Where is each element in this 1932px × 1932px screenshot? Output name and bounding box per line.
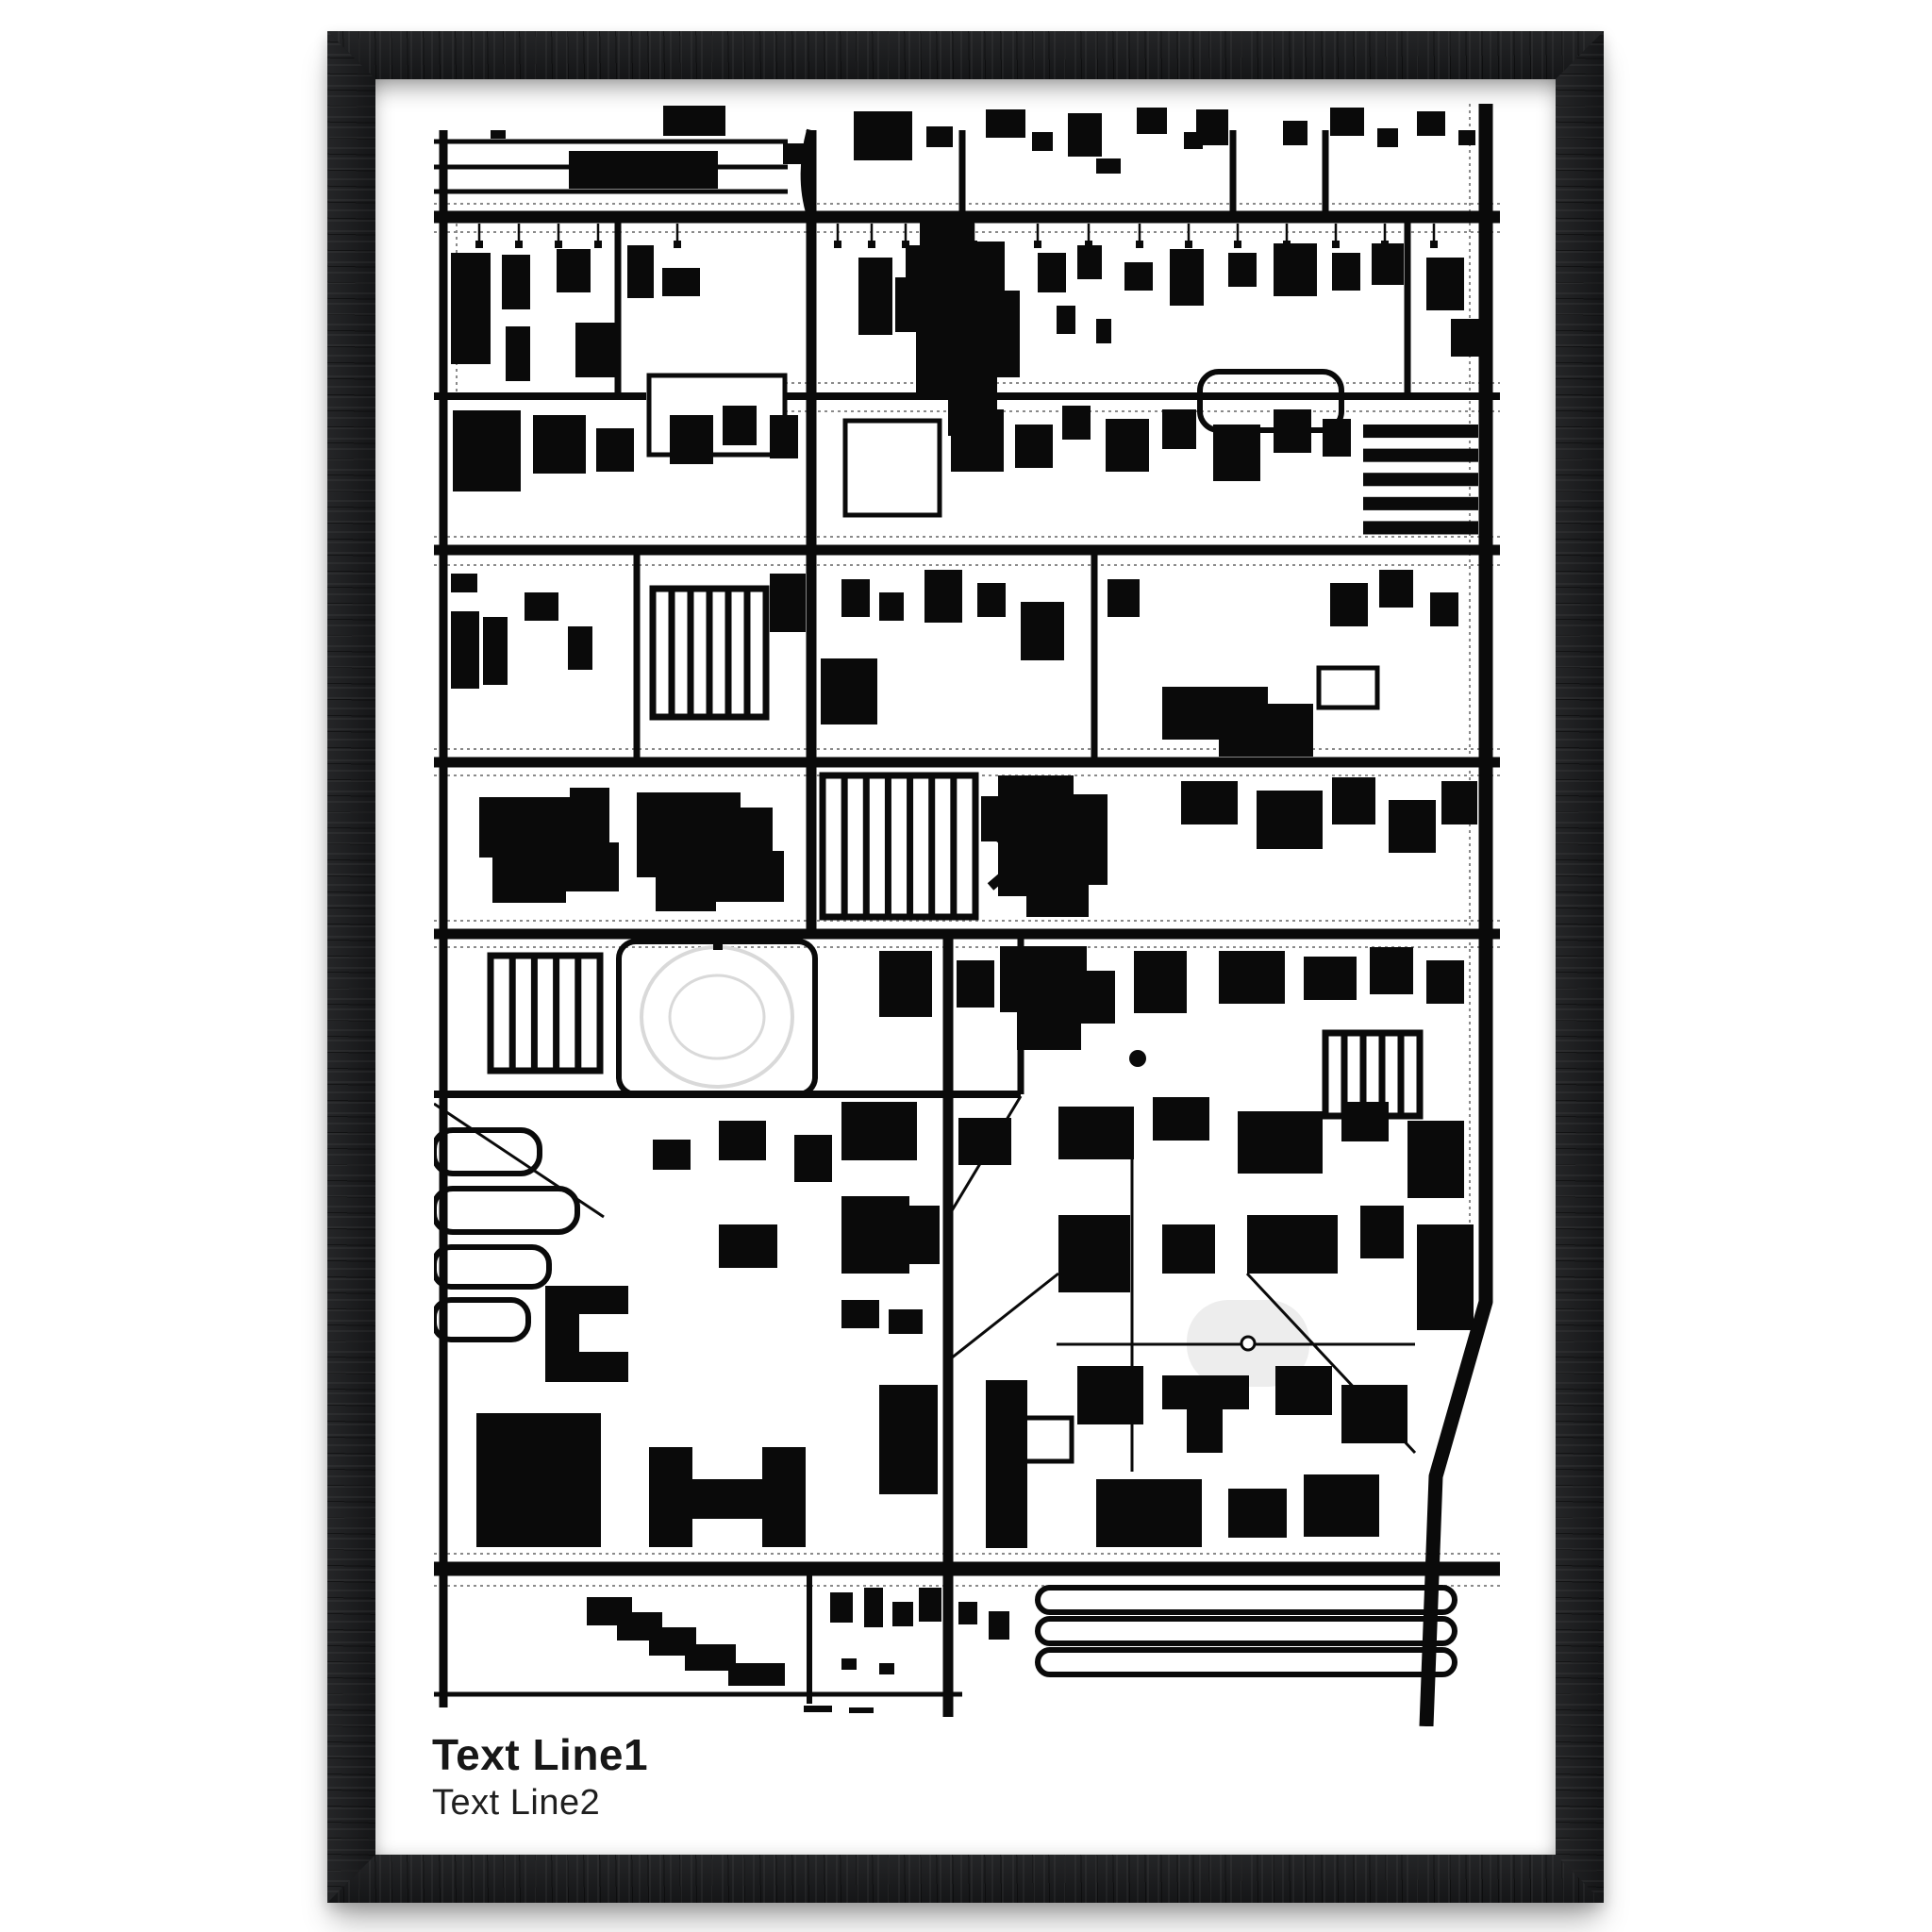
- picture-frame: Text Line1 Text Line2: [327, 31, 1604, 1903]
- caption-title: Text Line1: [432, 1733, 648, 1776]
- frame-bottom-rail: [327, 1855, 1604, 1903]
- city-map-print: [434, 104, 1500, 1726]
- frame-left-rail: [327, 31, 375, 1903]
- frame-right-rail: [1556, 31, 1604, 1903]
- caption-subtitle: Text Line2: [432, 1785, 648, 1821]
- poster: Text Line1 Text Line2: [375, 79, 1556, 1855]
- product-mockup-page: { "poster": { "text_line1": "Text Line1"…: [0, 0, 1932, 1932]
- poster-caption: Text Line1 Text Line2: [432, 1733, 648, 1821]
- frame-top-rail: [327, 31, 1604, 79]
